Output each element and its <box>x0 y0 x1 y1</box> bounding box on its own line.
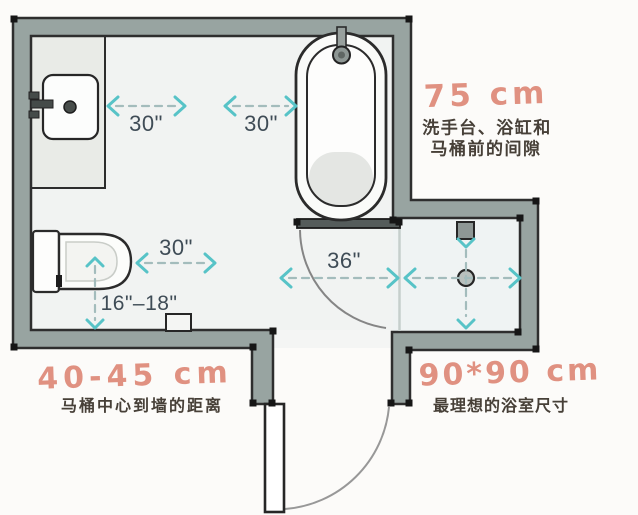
toilet-flush-lever <box>56 275 62 287</box>
dimension-label-toilet-clearance: 30" <box>159 235 193 261</box>
toilet-tank <box>33 231 59 292</box>
bathroom-floor-plan: 30" 30" 30" 16"–18" 36" 75 cm 洗手台、浴缸和 马桶… <box>0 0 638 515</box>
sink-faucet-icon <box>64 101 76 113</box>
bathtub-inner-shading <box>309 152 373 205</box>
toilet-icon <box>33 231 131 292</box>
entry-door-leaf <box>265 404 284 512</box>
tub-faucet-pipe <box>337 27 346 47</box>
dimension-label-toilet-center: 16"–18" <box>101 292 178 316</box>
door-swing-arc-lower <box>285 407 389 509</box>
dimension-label-sink-clearance: 30" <box>129 111 163 137</box>
threshold-marker <box>166 314 191 331</box>
annotation-front-clearance-value: 75 cm <box>423 75 549 115</box>
doorway-floor <box>273 330 393 348</box>
bathtub-icon <box>296 27 386 220</box>
sink-tap-knob-bottom <box>29 111 39 118</box>
annotation-shower-size-value: 90*90 cm <box>418 352 602 393</box>
annotation-shower-size-label: 最理想的浴室尺寸 <box>433 392 569 416</box>
annotation-front-clearance-line2: 马桶前的间隙 <box>431 135 542 160</box>
sink-tap-knob-top <box>29 92 39 99</box>
dimension-label-tub-clearance: 30" <box>244 111 278 137</box>
sink-tap-bar <box>31 100 53 108</box>
tub-faucet-center <box>338 52 345 59</box>
dimension-label-doorway: 36" <box>327 248 361 274</box>
shower-head-icon <box>457 222 474 239</box>
annotation-toilet-offset-value: 40-45 cm <box>37 355 234 397</box>
annotation-toilet-offset-label: 马桶中心到墙的距离 <box>61 392 223 416</box>
